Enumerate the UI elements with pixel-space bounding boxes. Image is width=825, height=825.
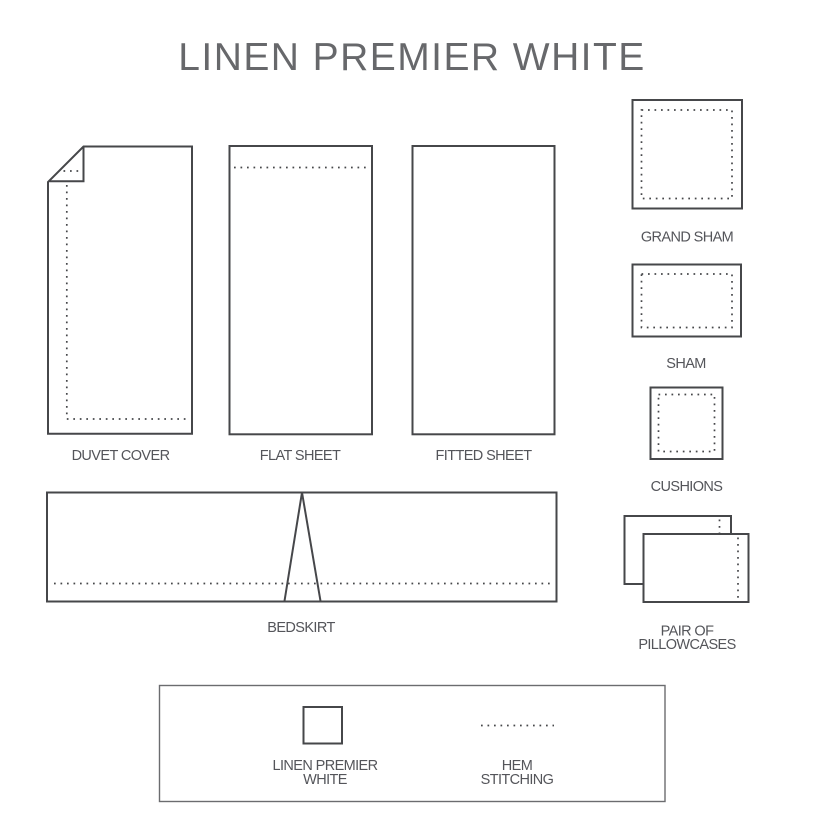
svg-text:LINEN PREMIER WHITE: LINEN PREMIER WHITE [178,36,645,79]
svg-text:WHITE: WHITE [303,772,348,788]
svg-text:GRAND SHAM: GRAND SHAM [641,230,733,246]
svg-text:CUSHIONS: CUSHIONS [651,479,723,495]
svg-text:SHAM: SHAM [666,356,706,372]
svg-text:FLAT SHEET: FLAT SHEET [260,448,341,464]
svg-text:PILLOWCASES: PILLOWCASES [638,637,735,653]
svg-text:BEDSKIRT: BEDSKIRT [267,620,335,636]
svg-text:FITTED SHEET: FITTED SHEET [436,448,533,464]
svg-text:STITCHING: STITCHING [481,772,554,788]
svg-text:DUVET COVER: DUVET COVER [72,448,170,464]
